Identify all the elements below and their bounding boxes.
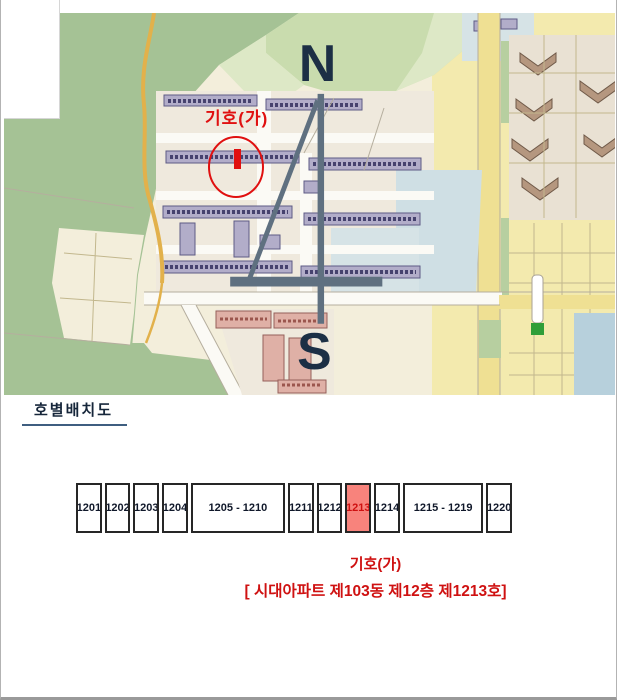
unit-cell-1212: 1212 [317, 483, 343, 533]
unit-row: 12011202120312041205 - 12101211121212131… [76, 483, 512, 533]
compass-north-label: N [299, 34, 336, 92]
compass-rose: N S [4, 0, 60, 119]
unit-cell-1205-1210: 1205 - 1210 [191, 483, 285, 533]
unit-cell-1220: 1220 [486, 483, 512, 533]
caption-block: 기호(가) [ 시대아파트 제103동 제12층 제1213호] [218, 553, 533, 601]
unit-cell-1203: 1203 [133, 483, 159, 533]
unit-cell-1211: 1211 [288, 483, 314, 533]
unit-cell-1214: 1214 [374, 483, 400, 533]
caption-detail: [ 시대아파트 제103동 제12층 제1213호] [218, 579, 533, 601]
site-map: N S 기호(가) [4, 13, 615, 395]
section-title: 호별배치도 [22, 399, 127, 426]
caption-symbol: 기호(가) [218, 553, 533, 574]
unit-cell-1201: 1201 [76, 483, 102, 533]
appraisal-document-page: N S 기호(가) 호별배치도 12011202120312041205 - 1… [0, 0, 617, 700]
unit-cell-1215-1219: 1215 - 1219 [403, 483, 484, 533]
map-marker-label: 기호(가) [205, 104, 268, 129]
unit-cell-1202: 1202 [105, 483, 131, 533]
unit-cell-1204: 1204 [162, 483, 188, 533]
unit-cell-1213: 1213 [345, 483, 371, 533]
compass-south-label: S [297, 322, 332, 380]
